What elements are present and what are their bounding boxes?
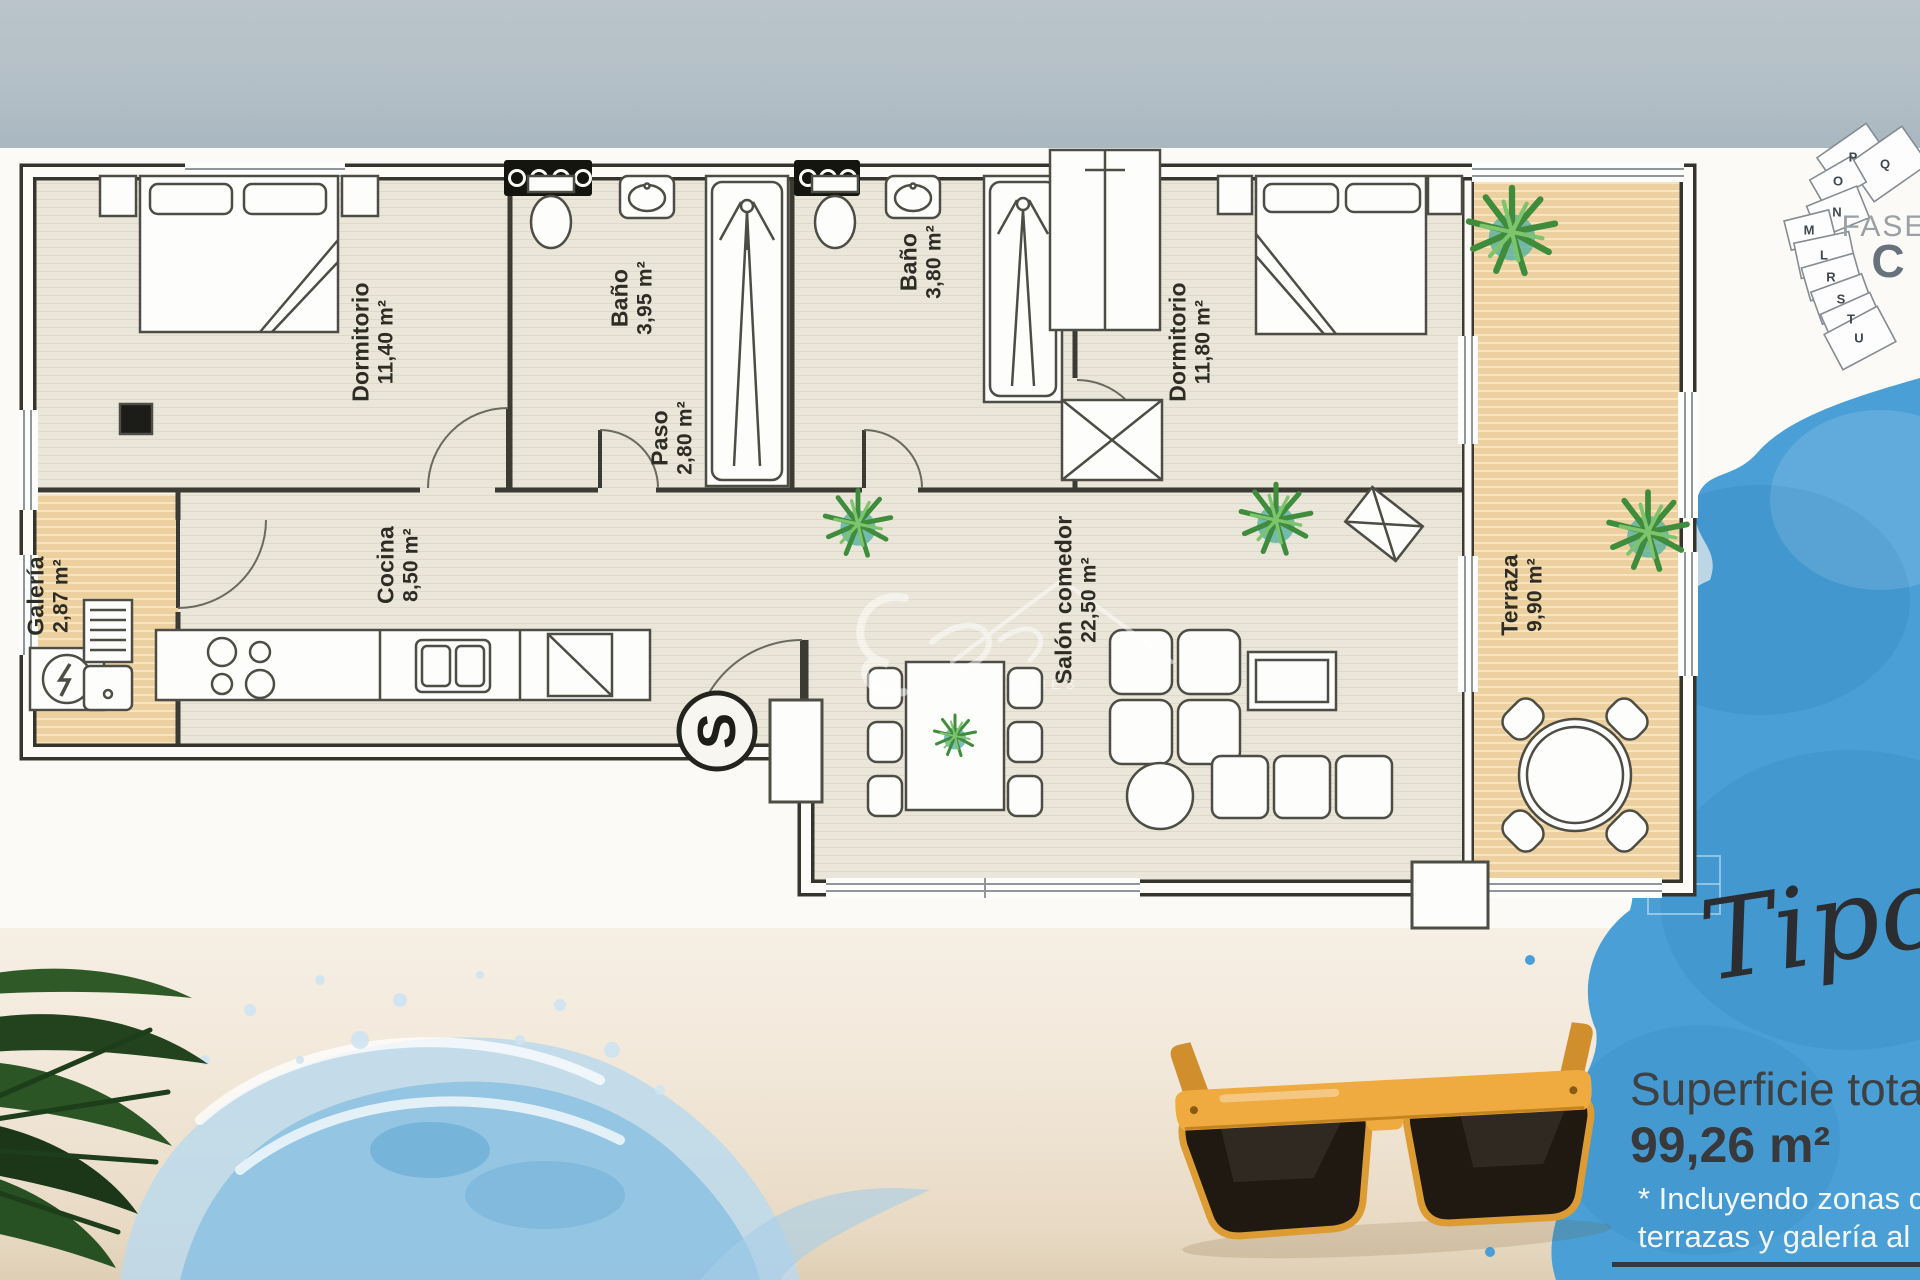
water-splash [120,971,930,1280]
block-letter: U [1854,331,1863,346]
block-letter: O [1833,174,1843,189]
bed-2-icon [1256,176,1426,334]
room-label-bano-2: Baño 3,80 m² [896,225,945,299]
summary-title: Superficie tota [1630,1062,1920,1116]
block-letter: R [1826,270,1835,285]
summary-note-2: terrazas y galería al 10 [1638,1218,1920,1256]
room-label-paso: Paso 2,80 m² [647,401,696,475]
nightstand-icon [1218,176,1252,214]
nightstand-icon [342,176,378,216]
sink-icon [620,176,674,218]
room-label-terraza: Terraza 9,90 m² [1497,554,1546,636]
floor-plan [18,150,1698,928]
bed-1-icon [140,176,338,332]
summary-area-value: 99,26 m² [1630,1116,1830,1174]
sink-icon [886,176,940,218]
nightstand-icon [100,176,136,216]
room-label-bano-1: Baño 3,95 m² [607,261,656,335]
block-letter: Q [1880,157,1890,172]
wardrobe-icon [1050,150,1160,330]
room-label-cocina: Cocina 8,50 m² [373,526,422,604]
laundry-sink-icon [84,666,132,710]
kitchen-sink-icon [416,640,490,692]
fridge-icon [548,634,612,696]
block-letter: N [1832,205,1841,220]
block-letter: L [1820,248,1828,263]
room-label-dormitorio-2: Dormitorio 11,80 m² [1165,282,1214,402]
room-label-dormitorio-1: Dormitorio 11,40 m² [348,282,397,402]
floorplan-poster: Dormitorio 11,40 m² Baño 3,95 m² Baño 3,… [0,0,1920,1280]
bottom-rule [1612,1262,1920,1267]
kitchen-counter-icon [156,630,650,700]
block-letter: T [1847,312,1855,327]
sunglasses [1170,1021,1612,1266]
summary-note-1: * Incluyendo zonas co [1638,1180,1920,1218]
toilet-icon [812,176,858,248]
summary-notes: * Incluyendo zonas co terrazas y galería… [1638,1180,1920,1256]
wardrobe-icon [1062,400,1162,480]
terrace-table-icon [1498,694,1653,857]
nightstand-icon [1428,176,1462,214]
block-letter: M [1804,223,1815,238]
compass-letter: S [686,713,748,749]
room-label-galeria: Galería 2,87 m² [23,556,72,635]
drying-rack-icon [84,600,132,662]
fase-letter: C [1871,234,1904,288]
entry-column [770,700,822,802]
tv-bedroom-icon [120,404,152,434]
toilet-icon [528,176,574,248]
exterior-unit [1412,862,1488,928]
watermark-text: RTIES [1014,676,1080,692]
coffee-table-icon [1248,652,1336,710]
block-letter: P [1849,150,1858,165]
shower-icon [706,176,788,486]
room-label-salon: Salón comedor 22,50 m² [1051,516,1100,685]
block-letter: S [1837,292,1846,307]
